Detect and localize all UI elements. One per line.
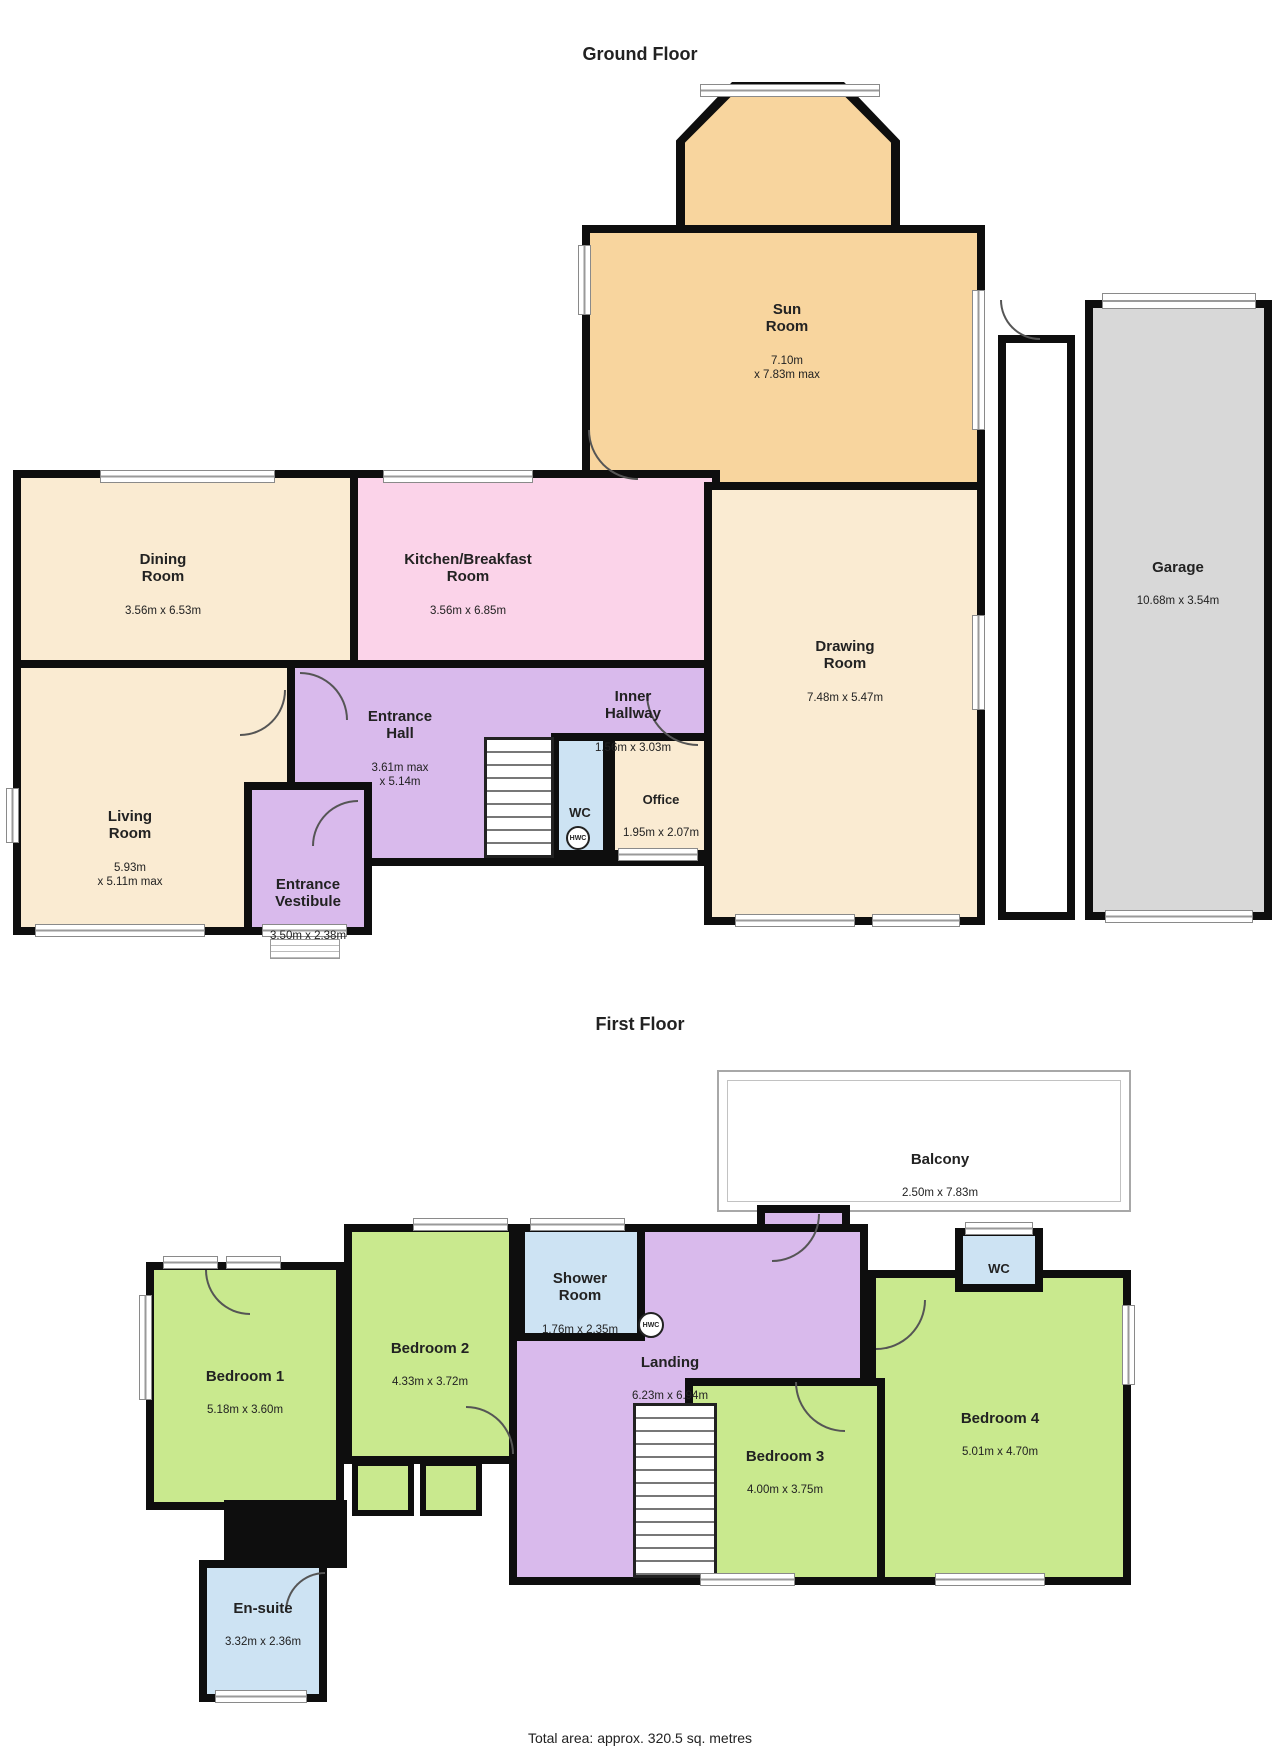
label-balcony: Balcony 2.50m x 7.83m xyxy=(902,1133,978,1219)
window xyxy=(700,1573,795,1586)
window xyxy=(735,914,855,927)
window xyxy=(530,1218,625,1231)
window xyxy=(872,914,960,927)
label-bedroom-1: Bedroom 1 5.18m x 3.60m xyxy=(206,1350,284,1436)
label-dining-room: Dining Room 3.56m x 6.53m xyxy=(125,533,201,636)
bay-window-room xyxy=(352,1460,414,1516)
label-wc-first: WC xyxy=(988,1244,1010,1295)
label-shower-room: Shower Room 1.76m x 2.35m xyxy=(542,1252,618,1355)
window xyxy=(35,924,205,937)
sun-room-bay-wall xyxy=(676,82,900,236)
garage-door xyxy=(1102,293,1256,309)
label-kitchen-breakfast-room: Kitchen/Breakfast Room 3.56m x 6.85m xyxy=(404,533,532,636)
label-sun-room: Sun Room 7.10m x 7.83m max xyxy=(754,283,820,400)
window xyxy=(578,245,591,315)
window xyxy=(972,290,985,430)
label-landing: Landing 6.23m x 6.94m xyxy=(632,1336,708,1422)
label-entrance-vestibule: Entrance Vestibule 3.50m x 2.38m xyxy=(270,858,346,961)
bay-window-room xyxy=(420,1460,482,1516)
first-floor-title: First Floor xyxy=(0,1014,1280,1035)
floorplan-canvas: Ground Floor Dining Room 3.56m x 6.53m K… xyxy=(0,0,1280,1759)
window xyxy=(935,1573,1045,1586)
window xyxy=(100,470,275,483)
label-garage: Garage 10.68m x 3.54m xyxy=(1137,541,1219,627)
label-bedroom-3: Bedroom 3 4.00m x 3.75m xyxy=(746,1430,824,1516)
window xyxy=(1122,1305,1135,1385)
label-inner-hallway: Inner Hallway 1.56m x 3.03m xyxy=(595,670,671,773)
window xyxy=(972,615,985,710)
window xyxy=(215,1690,307,1703)
window xyxy=(700,84,880,97)
window xyxy=(965,1222,1033,1235)
sun-room-bay xyxy=(685,91,891,227)
window xyxy=(139,1295,152,1400)
window xyxy=(383,470,533,483)
window xyxy=(6,788,19,843)
window xyxy=(163,1256,218,1269)
label-living-room: Living Room 5.93m x 5.11m max xyxy=(98,790,163,907)
ground-floor-title: Ground Floor xyxy=(0,44,1280,65)
stairs-first xyxy=(633,1403,717,1578)
stairs-ground xyxy=(484,737,554,858)
hwc-tank-ground: HWC xyxy=(566,826,590,850)
label-entrance-hall: Entrance Hall 3.61m max x 5.14m xyxy=(368,690,432,807)
hwc-tank-first: HWC xyxy=(638,1312,664,1338)
total-area-text: Total area: approx. 320.5 sq. metres xyxy=(0,1730,1280,1746)
ensuite-lobby-walls xyxy=(224,1500,347,1568)
window xyxy=(1105,910,1253,923)
label-en-suite: En-suite 3.32m x 2.36m xyxy=(225,1582,301,1668)
window xyxy=(226,1256,281,1269)
door-arc xyxy=(1000,300,1040,340)
window xyxy=(413,1218,508,1231)
label-drawing-room: Drawing Room 7.48m x 5.47m xyxy=(807,620,883,723)
side-passage xyxy=(998,335,1075,920)
label-bedroom-4: Bedroom 4 5.01m x 4.70m xyxy=(961,1392,1039,1478)
label-office: Office 1.95m x 2.07m xyxy=(623,775,699,858)
label-bedroom-2: Bedroom 2 4.33m x 3.72m xyxy=(391,1322,469,1408)
